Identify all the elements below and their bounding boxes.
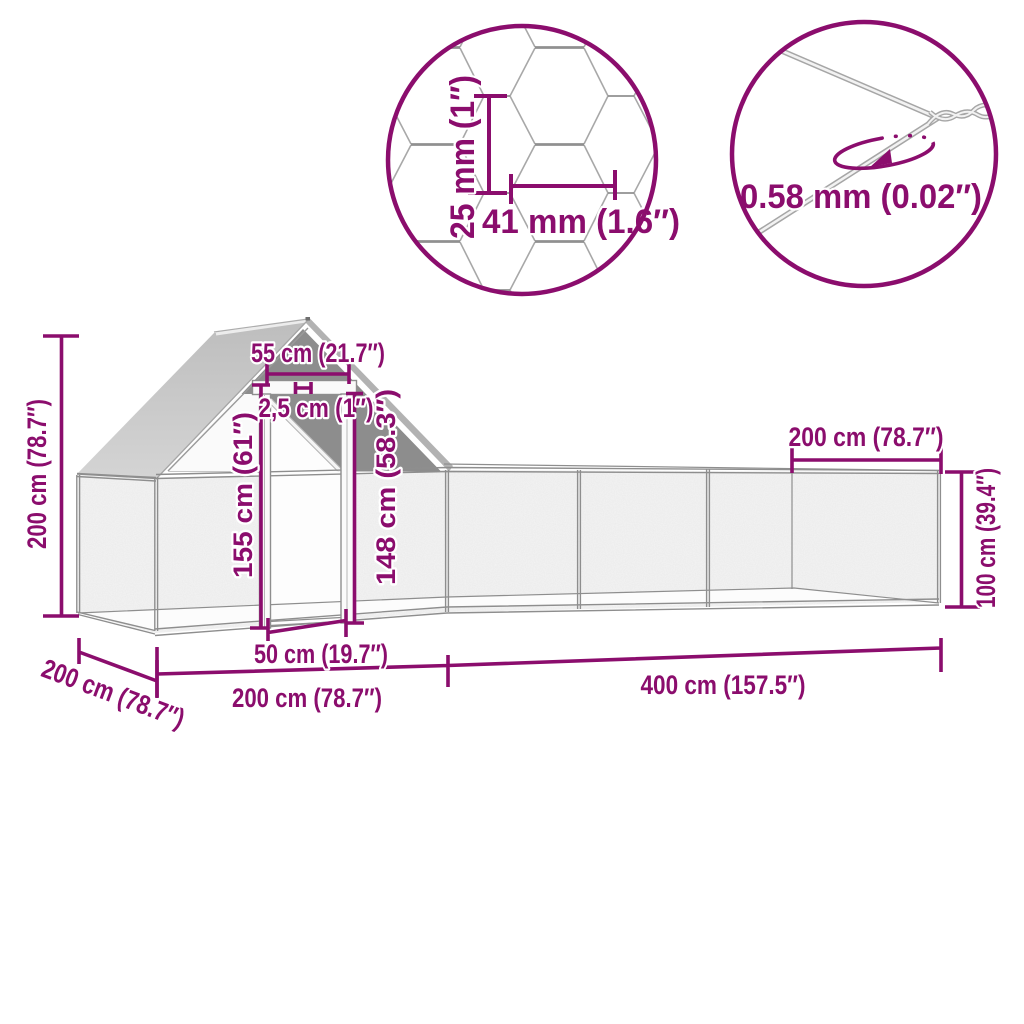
- svg-text:55 cm (21.7″): 55 cm (21.7″): [251, 338, 385, 368]
- svg-text:400 cm (157.5″): 400 cm (157.5″): [641, 670, 806, 700]
- svg-text:200 cm (78.7″): 200 cm (78.7″): [789, 422, 944, 452]
- svg-text:2,5 cm (1″): 2,5 cm (1″): [259, 393, 374, 423]
- svg-text:200 cm (78.7″): 200 cm (78.7″): [232, 683, 382, 713]
- svg-text:0.58 mm (0.02″): 0.58 mm (0.02″): [740, 178, 982, 216]
- svg-text:25 mm (1″): 25 mm (1″): [444, 75, 482, 239]
- svg-text:50 cm (19.7″): 50 cm (19.7″): [254, 639, 388, 669]
- svg-text:155 cm (61″): 155 cm (61″): [228, 412, 258, 578]
- svg-text:148 cm (58.3″): 148 cm (58.3″): [371, 389, 401, 585]
- svg-text:100 cm (39.4″): 100 cm (39.4″): [971, 468, 1001, 608]
- svg-text:200 cm (78.7″): 200 cm (78.7″): [22, 399, 52, 549]
- svg-text:41 mm (1.6″): 41 mm (1.6″): [482, 203, 680, 241]
